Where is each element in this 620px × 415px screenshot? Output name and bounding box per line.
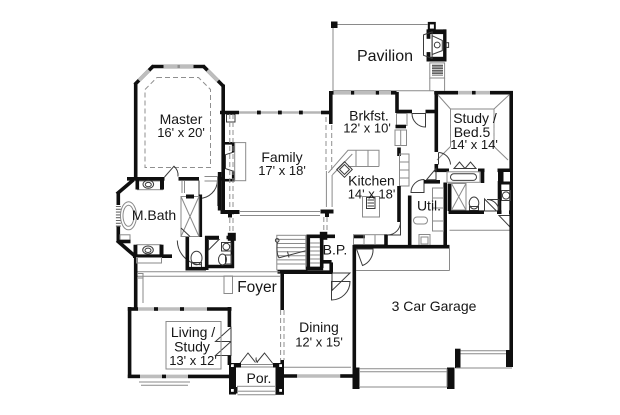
- svg-text:Dining: Dining: [299, 319, 339, 335]
- svg-text:M.Bath: M.Bath: [132, 207, 176, 223]
- svg-text:16' x 20': 16' x 20': [157, 125, 205, 140]
- svg-text:12' x 15': 12' x 15': [295, 335, 343, 350]
- svg-text:14' x 14': 14' x 14': [450, 137, 498, 152]
- svg-text:14' x 18': 14' x 18': [348, 187, 396, 202]
- svg-text:13' x 12': 13' x 12': [169, 353, 217, 368]
- svg-text:B.P.: B.P.: [323, 242, 348, 258]
- svg-text:17' x 18': 17' x 18': [258, 163, 306, 178]
- svg-text:Foyer: Foyer: [237, 279, 277, 296]
- svg-text:Util.: Util.: [417, 198, 441, 214]
- svg-text:Pavilion: Pavilion: [357, 48, 413, 65]
- svg-text:12' x 10': 12' x 10': [343, 121, 391, 136]
- svg-text:3 Car Garage: 3 Car Garage: [392, 298, 477, 314]
- svg-text:Por.: Por.: [247, 370, 272, 386]
